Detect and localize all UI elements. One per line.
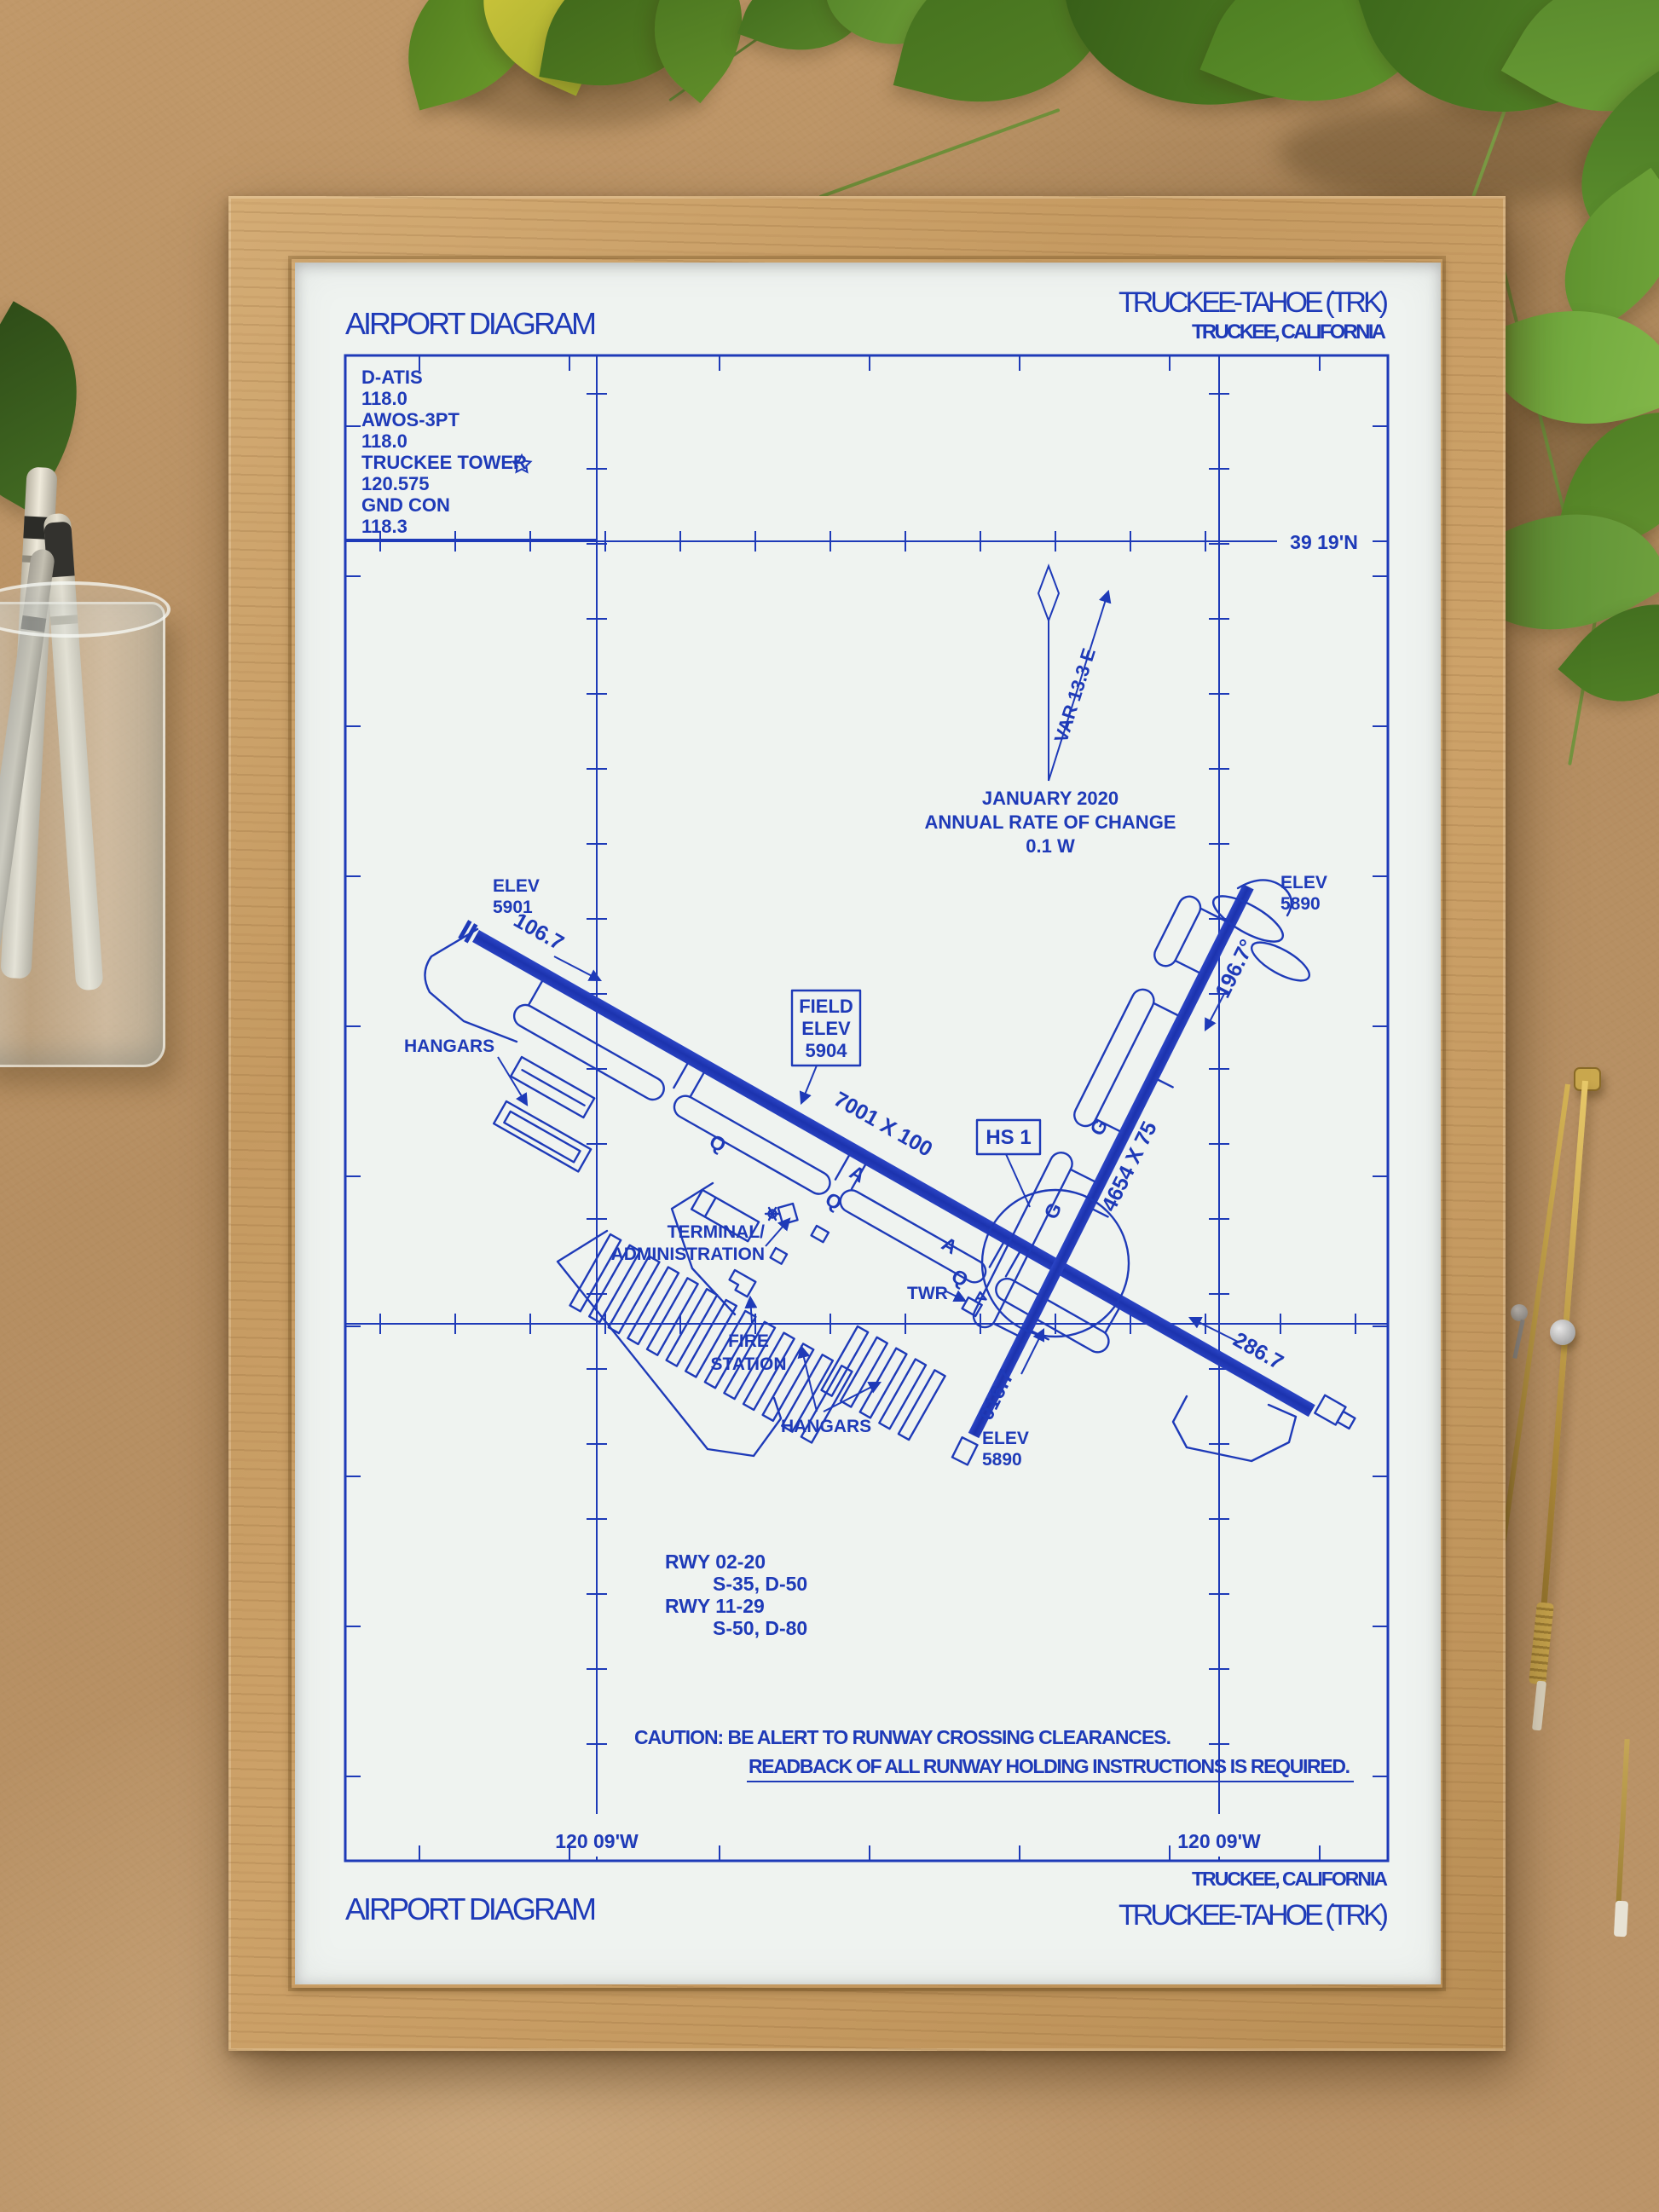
comm-line: 118.0 (361, 388, 408, 409)
heading-20-arrow (1205, 990, 1226, 1030)
hangar-west-2 (494, 1101, 591, 1171)
fire-station-building (726, 1270, 755, 1297)
taxiway-a-label: A (938, 1233, 961, 1259)
poster-paper: AIRPORT DIAGRAM TRUCKEE-TAHOE (TRK) TRUC… (295, 263, 1441, 1984)
diagram-ink-layer: AIRPORT DIAGRAM TRUCKEE-TAHOE (TRK) TRUC… (345, 286, 1390, 1932)
terminal-label-2: ADMINISTRATION (611, 1245, 765, 1264)
photo-scene: AIRPORT DIAGRAM TRUCKEE-TAHOE (TRK) TRUC… (0, 0, 1659, 2212)
runup-apron-southeast (1173, 1396, 1296, 1461)
taxiway-g-label: G (1039, 1199, 1066, 1223)
tower-label: TWR (907, 1284, 948, 1303)
field-elev-line: FIELD (799, 996, 853, 1017)
fire-station-label-2: STATION (710, 1354, 786, 1374)
pin-head (1511, 1304, 1528, 1321)
hangar-west-1 (511, 1057, 594, 1118)
hot-spot-label: HS 1 (986, 1126, 1031, 1149)
variation-date: JANUARY 2020 (982, 788, 1119, 809)
comm-frequencies: D-ATIS 118.0 AWOS-3PT 118.0 TRUCKEE TOWE… (361, 367, 530, 537)
comm-line: 118.3 (361, 516, 408, 537)
small-building (812, 1226, 829, 1242)
tool-rod-tip (1614, 1901, 1628, 1938)
elev-02-label: ELEV (982, 1429, 1029, 1448)
hangars-west-arrow (498, 1057, 527, 1105)
airport-city: TRUCKEE, CALIFORNIA (1192, 321, 1386, 344)
caution-line-1: CAUTION: BE ALERT TO RUNWAY CROSSING CLE… (634, 1726, 1171, 1748)
hangars-south-label: HANGARS (781, 1417, 871, 1436)
longitude-label-left: 120 09'W (555, 1830, 639, 1852)
comm-line: TRUCKEE TOWER (361, 452, 527, 473)
elev-20-label: ELEV (1280, 873, 1327, 892)
hot-spot-leader (1006, 1154, 1030, 1207)
runway-data-line: RWY 11-29 (665, 1595, 765, 1617)
comm-line: 118.0 (361, 430, 408, 452)
hangars-west-label: HANGARS (404, 1037, 494, 1056)
variation-label: VAR 13.3 E (1050, 645, 1100, 745)
field-elev-arrow (801, 1066, 817, 1103)
elev-20-value: 5890 (1280, 894, 1321, 914)
small-building (771, 1248, 787, 1264)
latitude-label: 39 19'N (1290, 531, 1358, 553)
taxiway-q-label: Q (948, 1264, 972, 1291)
glass-cup (0, 602, 165, 1067)
comm-line: AWOS-3PT (361, 409, 460, 430)
beacon-icon (766, 1208, 779, 1220)
heading-02: 016.7 (974, 1366, 1019, 1424)
airport-diagram: AIRPORT DIAGRAM TRUCKEE-TAHOE (TRK) TRUC… (295, 263, 1441, 1984)
caution-line-2: READBACK OF ALL RUNWAY HOLDING INSTRUCTI… (749, 1755, 1350, 1777)
footer-city: TRUCKEE, CALIFORNIA (1192, 1868, 1388, 1890)
terminal-arrow (766, 1219, 789, 1246)
fire-station-label: FIRE (728, 1331, 769, 1351)
taxiway-g-label: G (1085, 1116, 1112, 1140)
comm-line: GND CON (361, 494, 450, 516)
page-title: AIRPORT DIAGRAM (345, 306, 598, 341)
runup-pad-southeast (1315, 1395, 1357, 1432)
elev-11-value: 5901 (493, 898, 533, 917)
elev-02-value: 5890 (982, 1450, 1022, 1470)
runway-data-line: S-50, D-80 (713, 1617, 807, 1639)
elev-11-label: ELEV (493, 876, 540, 896)
true-north-arrow (1038, 566, 1059, 781)
airport-name: TRUCKEE-TAHOE (TRK) (1119, 286, 1390, 319)
rate-of-change-label: ANNUAL RATE OF CHANGE (925, 811, 1176, 833)
fire-station-arrow (750, 1297, 752, 1323)
grid-verticals (597, 355, 1219, 1861)
terminal-label: TERMINAL/ (668, 1222, 765, 1242)
runway-02-20-group (912, 863, 1270, 1472)
runway-data-line: RWY 02-20 (665, 1551, 766, 1573)
footer-airport: TRUCKEE-TAHOE (TRK) (1119, 1899, 1390, 1932)
runway-data-line: S-35, D-50 (713, 1573, 807, 1595)
comm-line: D-ATIS (361, 367, 423, 388)
compass-rose: VAR 13.3 E JANUARY 2020 ANNUAL RATE OF C… (925, 566, 1176, 857)
comm-line: 120.575 (361, 473, 430, 494)
longitude-label-right: 120 09'W (1177, 1830, 1261, 1852)
rate-of-change-value: 0.1 W (1026, 835, 1075, 857)
divider-wheel (1550, 1320, 1575, 1345)
field-elev-value: 5904 (806, 1040, 848, 1061)
runway-end-pad (952, 1437, 978, 1464)
footer-title: AIRPORT DIAGRAM (345, 1891, 598, 1926)
field-elev-line: ELEV (801, 1018, 851, 1039)
